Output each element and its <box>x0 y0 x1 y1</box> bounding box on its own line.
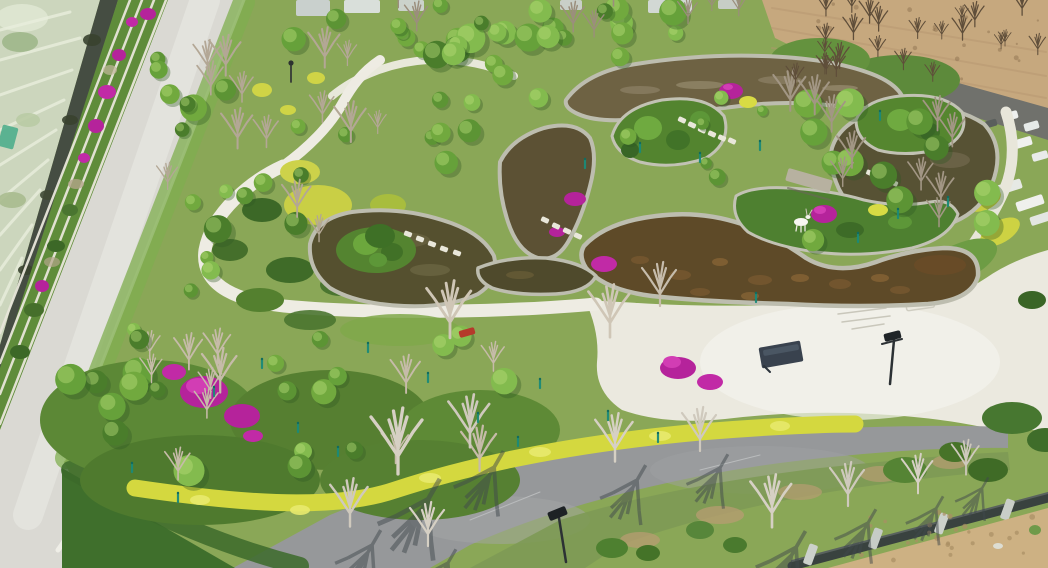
deer-sculpture-head <box>805 215 810 219</box>
deer-sculpture-body <box>794 218 808 226</box>
scene-canvas: Aerial drone photo of a newly landscaped… <box>0 0 1048 568</box>
park-light <box>288 60 293 65</box>
aerial-park-photo: Aerial drone photo of a newly landscaped… <box>0 0 1048 568</box>
